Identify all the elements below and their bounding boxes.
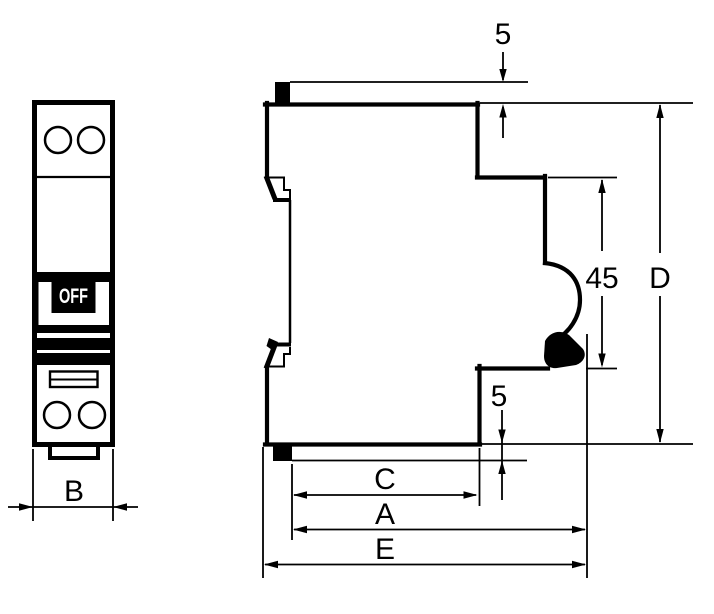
arrowhead-down-icon [656, 429, 663, 443]
arrowhead-up-icon [598, 179, 605, 193]
dim-c-label: C [374, 463, 396, 496]
bottom-mount-pin [273, 445, 292, 461]
label-window [50, 372, 98, 388]
arrowhead-down-icon [499, 69, 506, 82]
arrowhead-down-icon [598, 354, 605, 368]
vent-stripe-1 [37, 338, 110, 350]
toggle-slot-right [96, 282, 110, 325]
bottom-claw-tip [267, 338, 279, 351]
arrowhead-right-icon [572, 561, 586, 568]
side-profile [265, 103, 580, 445]
toggle-slot-bottom [52, 313, 96, 325]
arrowhead-left-icon [293, 491, 307, 498]
top-claw-outer [266, 176, 275, 199]
dim-e: E [263, 447, 586, 578]
arrowhead-left-icon [264, 561, 278, 568]
dim-bottom-5: 5 [292, 380, 527, 500]
terminal-screw-bottom-right [79, 402, 105, 428]
arrowhead-right-icon [572, 526, 586, 533]
arrowhead-up-icon [498, 461, 505, 475]
dim-d-label: D [649, 262, 671, 295]
arrowhead-right-icon [19, 503, 33, 510]
top-mount-pin [275, 82, 290, 103]
arrowhead-left-icon [113, 503, 127, 510]
front-view: OFF B [8, 103, 138, 522]
terminal-screw-bottom-left [44, 402, 70, 428]
din-claws [266, 176, 291, 369]
arrowhead-left-icon [293, 526, 307, 533]
terminal-screw-top-right [78, 127, 104, 153]
arrowhead-down-icon [498, 430, 505, 444]
dimensional-drawing: OFF B [0, 0, 714, 614]
toggle-switch-label: OFF [59, 285, 88, 308]
profile-thumb-recess [545, 263, 580, 339]
side-view: 5 45 D 5 [263, 18, 693, 578]
dim-top-5: 5 [290, 18, 693, 138]
arrowhead-up-icon [499, 104, 506, 118]
vent-stripe-2 [37, 353, 110, 365]
dim-e-label: E [375, 533, 395, 566]
dim-a-label: A [375, 498, 395, 531]
dim-top5-label: 5 [495, 18, 512, 51]
dim-45-label: 45 [585, 262, 618, 295]
dim-b-label: B [64, 475, 84, 508]
toggle-switch: OFF [37, 272, 110, 333]
terminal-screw-top-left [45, 127, 71, 153]
arrowhead-right-icon [464, 491, 478, 498]
toggle-slot-left [39, 282, 52, 325]
clip-pawl [544, 332, 585, 368]
arrowhead-up-icon [656, 104, 663, 118]
dim-bottom5-label: 5 [491, 380, 508, 413]
